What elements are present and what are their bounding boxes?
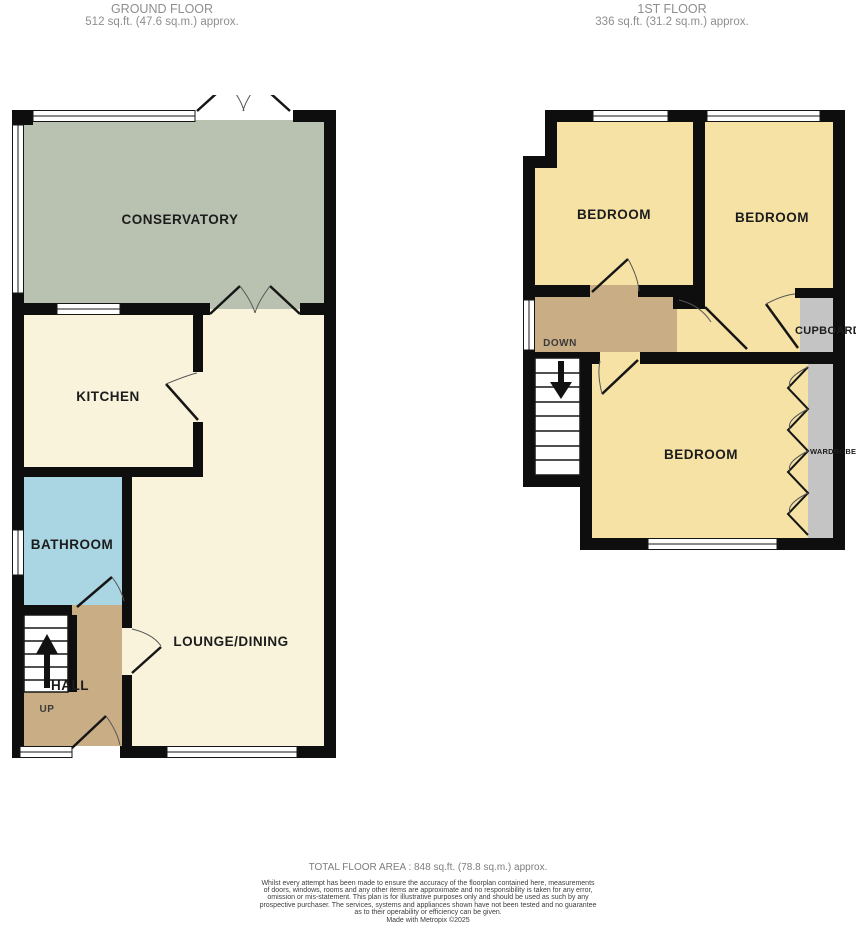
disclaimer: Whilst every attempt has been made to en… [0,880,856,924]
metropix-credit: Made with Metropix ©2025 [0,917,856,924]
label-bedroom-2: BEDROOM [735,210,809,225]
label-bedroom-3: BEDROOM [664,447,738,462]
ground-floor-plan: CONSERVATORY KITCHEN BATHROOM LOUNGE/DIN… [0,95,360,775]
label-cupboard: CUPBOARD [795,325,856,337]
ground-floor-area: 512 sq.ft. (47.6 sq.m.) approx. [42,16,282,29]
lounge-doorway [122,628,132,675]
room-bedroom-1 [535,122,693,285]
conservatory-french-door-leaf [197,95,228,111]
floorplan-page: { "ground_floor": { "title": "GROUND FLO… [0,0,856,929]
first-floor-title: 1ST FLOOR [552,2,792,16]
first-floor-area: 336 sq.ft. (31.2 sq.m.) approx. [552,16,792,29]
label-stairs-up: UP [40,704,55,715]
label-lounge-dining: LOUNGE/DINING [173,634,288,649]
first-floor-plan: BEDROOM BEDROOM BEDROOM DOWN CUPBOARD WA… [505,95,856,565]
door-swing-arc [243,95,259,111]
door-swing-arc [228,95,244,111]
label-kitchen: KITCHEN [76,389,140,404]
disclaimer-line: as to their operability or efficiency ca… [0,909,856,916]
label-bathroom: BATHROOM [31,537,114,552]
first-stairs [535,358,580,475]
disclaimer-line: omission or mis-statement. This plan is … [0,894,856,901]
disclaimer-line: prospective purchaser. The services, sys… [0,902,856,909]
label-bedroom-1: BEDROOM [577,207,651,222]
label-wardrobe: WARDROBE [810,447,856,456]
conservatory-french-door-leaf [259,95,290,111]
disclaimer-line: Whilst every attempt has been made to en… [0,880,856,887]
label-conservatory: CONSERVATORY [121,212,238,227]
total-floor-area: TOTAL FLOOR AREA : 848 sq.ft. (78.8 sq.m… [0,862,856,873]
disclaimer-line: of doors, windows, rooms and any other i… [0,887,856,894]
ground-floor-title: GROUND FLOOR [42,2,282,16]
label-hall: HALL [51,678,89,693]
label-stairs-down: DOWN [543,338,577,349]
conservatory-doorway-top [210,303,300,309]
ground-floor-header: GROUND FLOOR 512 sq.ft. (47.6 sq.m.) app… [42,2,282,29]
first-floor-header: 1ST FLOOR 336 sq.ft. (31.2 sq.m.) approx… [552,2,792,29]
